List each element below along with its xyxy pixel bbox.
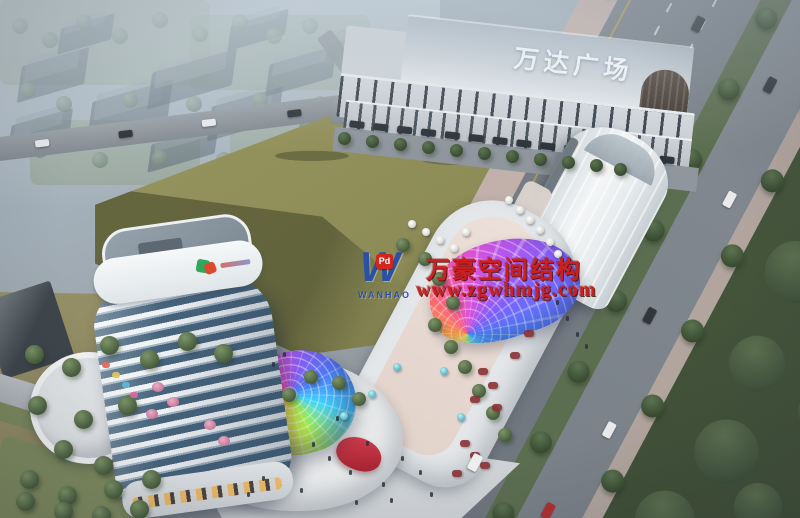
- aerial-rendering-scene: 万达广场: [0, 0, 800, 518]
- cafe-canopy: [480, 462, 490, 469]
- logo-red-badge: Pd: [376, 254, 393, 269]
- person: [576, 332, 579, 337]
- blossom-bush: [167, 397, 179, 407]
- cafe-canopy: [470, 396, 480, 403]
- person: [283, 352, 286, 357]
- tree: [100, 336, 119, 355]
- watermark: W Pd WANHAO 万豪空间结构 www.zgwhmjg.com: [360, 248, 610, 314]
- person: [247, 492, 250, 497]
- blossom-bush: [146, 409, 158, 419]
- tree: [92, 506, 111, 518]
- person: [262, 476, 265, 481]
- tree: [94, 456, 113, 475]
- watermark-url-text: www.zgwhmjg.com: [416, 279, 610, 302]
- cafe-canopy: [510, 352, 520, 359]
- umbrella: [516, 206, 524, 214]
- person: [349, 470, 352, 475]
- umbrella: [440, 367, 448, 375]
- person: [366, 441, 369, 446]
- cafe-canopy: [452, 470, 462, 477]
- roof-tree: [304, 370, 318, 384]
- tree: [16, 492, 35, 511]
- tree: [25, 345, 44, 364]
- tree: [118, 396, 137, 415]
- umbrella: [422, 228, 430, 236]
- tree: [450, 144, 463, 157]
- tree: [506, 150, 519, 163]
- person: [382, 482, 385, 487]
- person: [419, 470, 422, 475]
- umbrella: [393, 363, 401, 371]
- person: [328, 456, 331, 461]
- roof-tree: [458, 360, 472, 374]
- roof-tree: [332, 376, 346, 390]
- person: [566, 316, 569, 321]
- person: [272, 362, 275, 367]
- tree: [104, 480, 123, 499]
- tree: [562, 156, 575, 169]
- tree: [74, 410, 93, 429]
- tree: [142, 470, 161, 489]
- roof-tree: [352, 392, 366, 406]
- umbrella: [436, 236, 444, 244]
- tree: [140, 350, 159, 369]
- tree: [130, 500, 149, 518]
- shop-canopy: [130, 392, 138, 398]
- umbrella: [536, 226, 544, 234]
- cafe-canopy: [488, 382, 498, 389]
- cafe-canopy: [460, 440, 470, 447]
- tree: [366, 135, 379, 148]
- cafe-canopy: [524, 330, 534, 337]
- blossom-bush: [204, 420, 216, 430]
- tree: [590, 159, 603, 172]
- person: [312, 442, 315, 447]
- roof-tree: [444, 340, 458, 354]
- tree: [422, 141, 435, 154]
- tree: [534, 153, 547, 166]
- umbrella: [505, 196, 513, 204]
- umbrella: [340, 412, 348, 420]
- tree: [54, 440, 73, 459]
- umbrella: [457, 413, 465, 421]
- person: [430, 492, 433, 497]
- tree: [478, 147, 491, 160]
- roof-tree: [428, 318, 442, 332]
- tree: [614, 163, 627, 176]
- tree: [394, 138, 407, 151]
- shop-canopy: [102, 362, 110, 368]
- tree: [338, 132, 351, 145]
- roof-tree: [498, 428, 512, 442]
- umbrella: [526, 216, 534, 224]
- tree: [214, 344, 233, 363]
- shop-canopy: [112, 372, 120, 378]
- tree: [20, 470, 39, 489]
- roof-tree: [282, 388, 296, 402]
- person: [390, 498, 393, 503]
- logo-name-text: WANHAO: [358, 290, 422, 300]
- tree: [28, 396, 47, 415]
- umbrella: [408, 220, 416, 228]
- cafe-canopy: [478, 368, 488, 375]
- person: [401, 456, 404, 461]
- watermark-logo: W Pd WANHAO: [360, 252, 420, 308]
- tree: [54, 502, 73, 518]
- tree: [178, 332, 197, 351]
- tree: [62, 358, 81, 377]
- person: [355, 500, 358, 505]
- cafe-canopy: [492, 404, 502, 411]
- umbrella: [368, 390, 376, 398]
- blossom-bush: [218, 436, 230, 446]
- umbrella: [462, 228, 470, 236]
- person: [336, 416, 339, 421]
- blossom-bush: [152, 382, 164, 392]
- shop-canopy: [122, 382, 130, 388]
- umbrella: [546, 238, 554, 246]
- person: [585, 344, 588, 349]
- person: [300, 488, 303, 493]
